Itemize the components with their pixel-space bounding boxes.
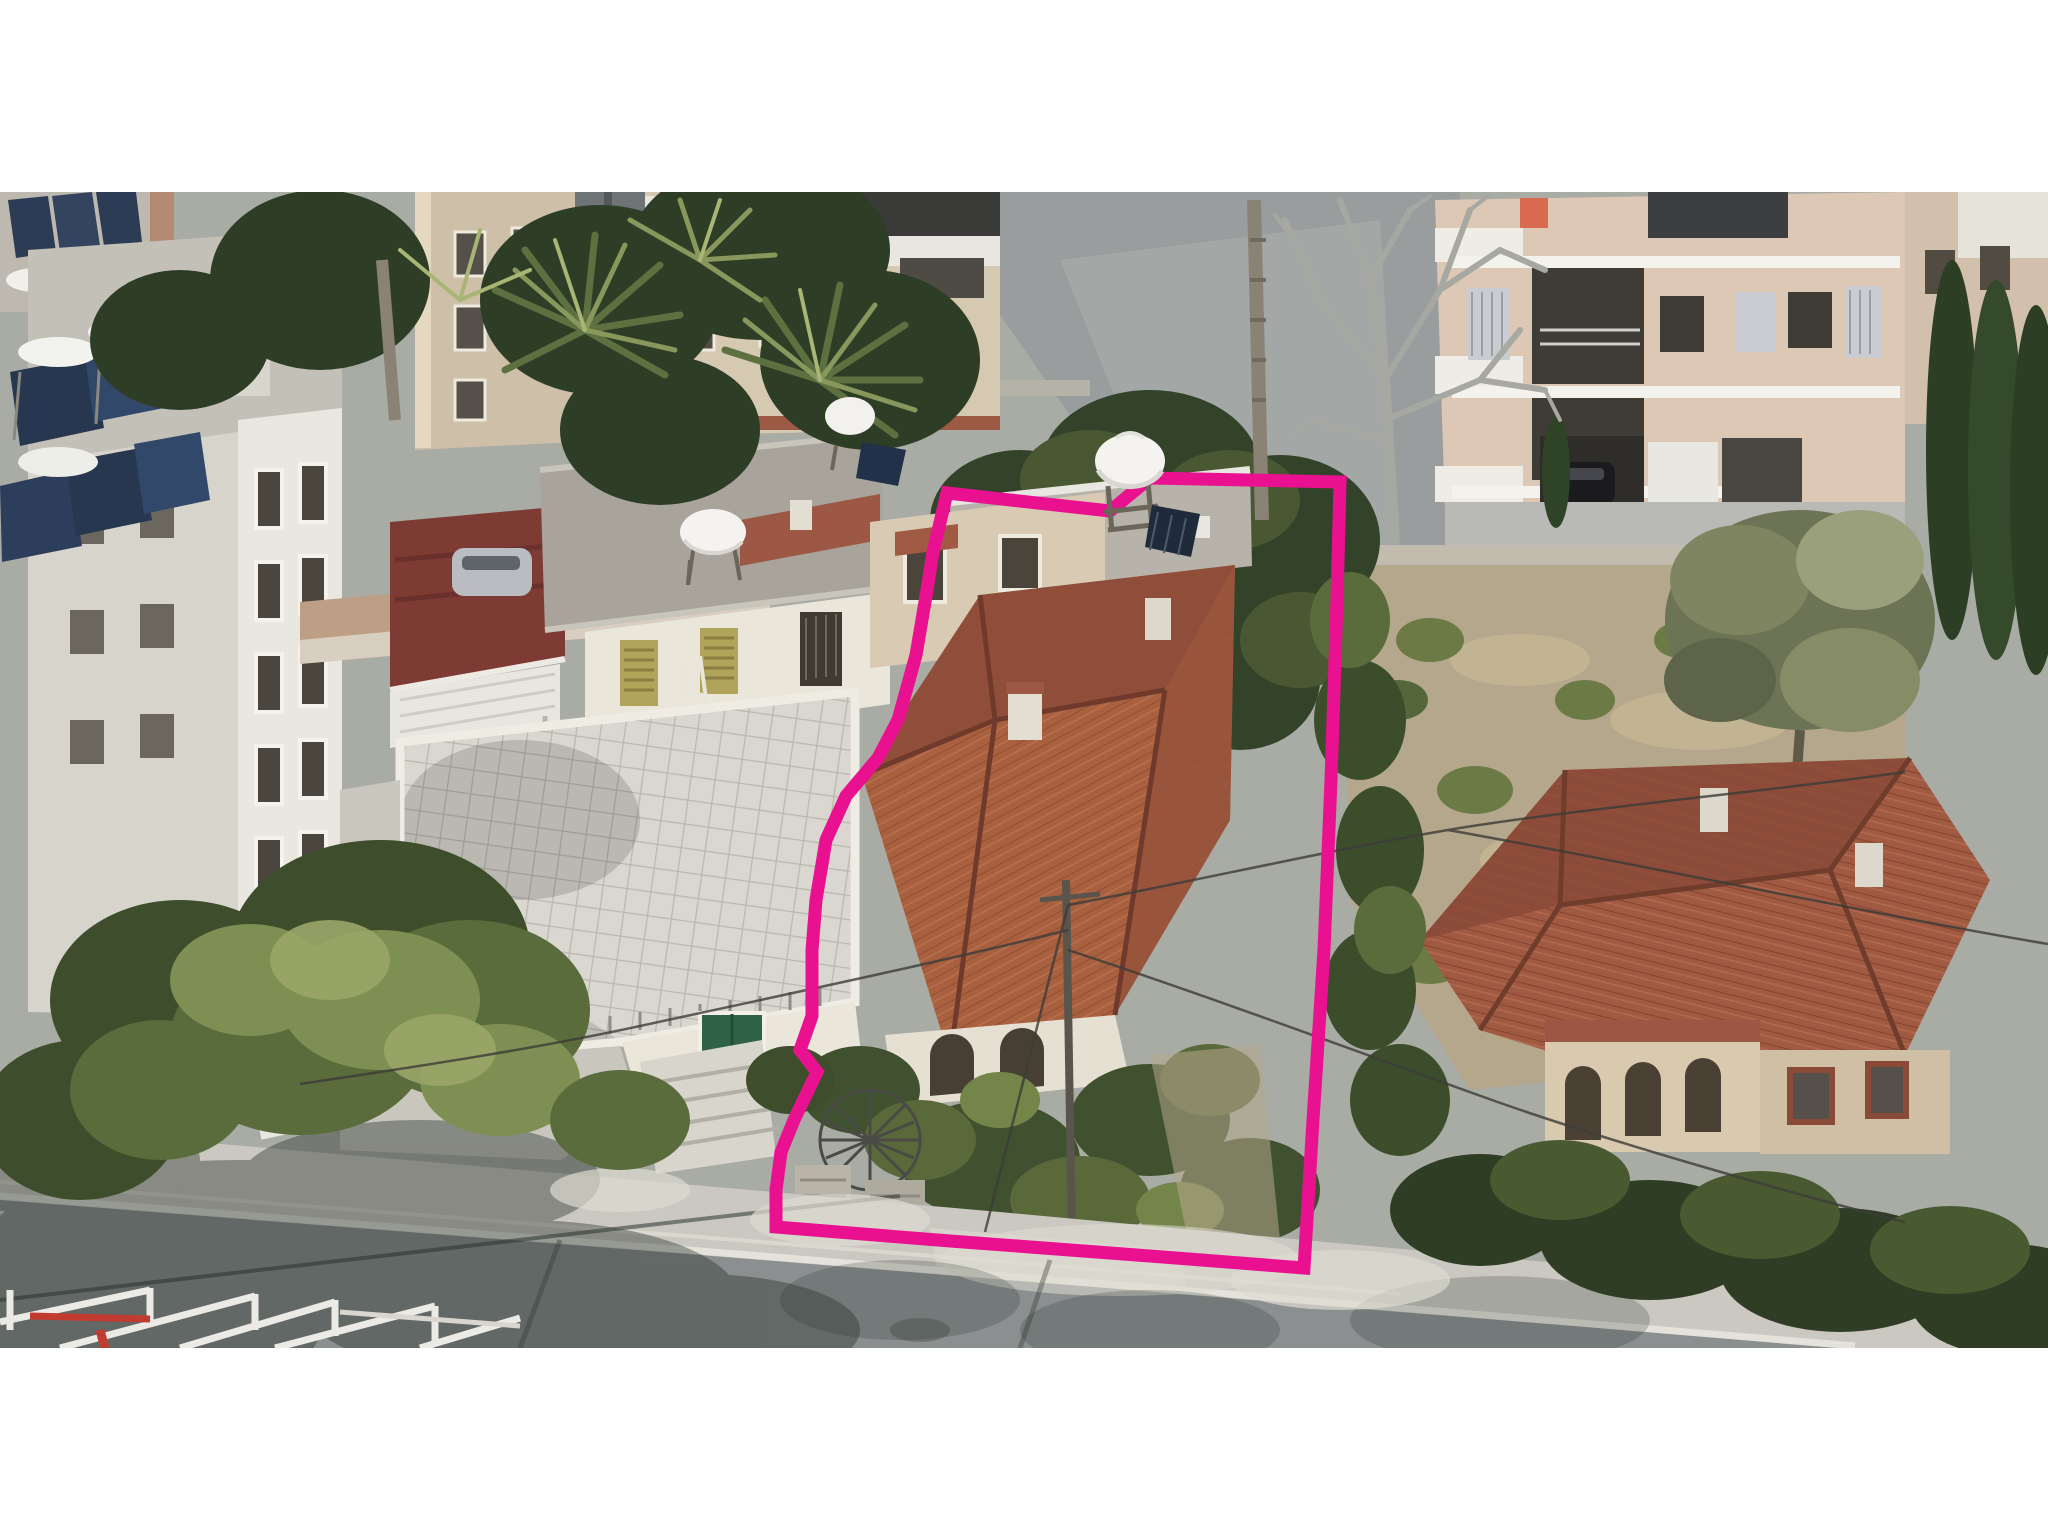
aerial-photo-canvas (0, 0, 2048, 1536)
screenshot-root (0, 0, 2048, 1536)
top-right-apartment-building (1435, 192, 1905, 554)
photograph (0, 160, 2048, 1400)
